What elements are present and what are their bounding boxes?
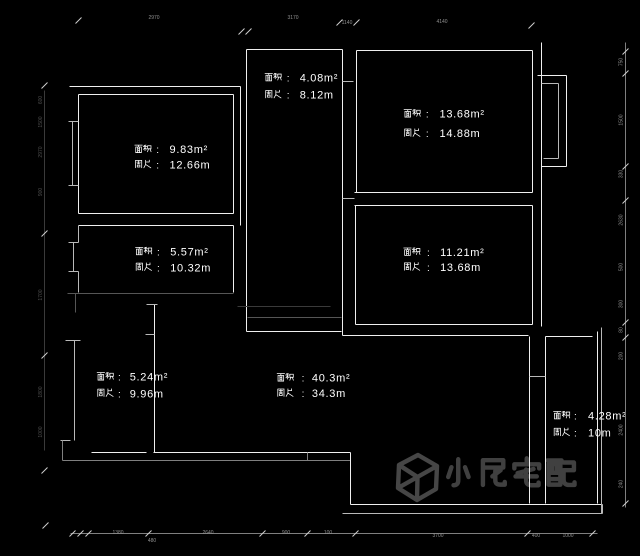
svg-text:2970: 2970	[38, 146, 44, 157]
svg-text::: :	[574, 429, 577, 440]
svg-text::: :	[426, 129, 429, 140]
svg-text:1000: 1000	[38, 426, 44, 437]
svg-text:400: 400	[532, 533, 541, 539]
svg-text:900: 900	[282, 530, 291, 536]
svg-text:1500: 1500	[619, 114, 625, 125]
svg-text::: :	[118, 389, 121, 400]
svg-text::: :	[157, 263, 160, 274]
svg-text:80: 80	[619, 327, 625, 333]
svg-text:9.83m²: 9.83m²	[170, 144, 208, 156]
svg-text:13.68m²: 13.68m²	[440, 109, 485, 121]
svg-text:3700: 3700	[432, 533, 443, 539]
svg-text::: :	[427, 248, 430, 259]
svg-text:3170: 3170	[287, 15, 298, 21]
svg-text:14.88m: 14.88m	[440, 128, 481, 140]
svg-text:11.21m²: 11.21m²	[440, 247, 484, 259]
svg-text:4140: 4140	[436, 19, 447, 25]
svg-text::: :	[426, 110, 429, 121]
svg-text:2400: 2400	[619, 424, 625, 435]
svg-text:10m: 10m	[588, 428, 612, 440]
svg-text:10.32m: 10.32m	[170, 262, 211, 274]
svg-text::: :	[302, 389, 305, 400]
svg-text:5.24m²: 5.24m²	[130, 372, 168, 384]
svg-text:1500: 1500	[38, 116, 44, 127]
svg-text::: :	[287, 91, 290, 102]
svg-text:300: 300	[619, 300, 625, 309]
svg-text:750: 750	[619, 58, 625, 67]
svg-text:1700: 1700	[38, 289, 44, 300]
svg-text::: :	[287, 74, 290, 85]
svg-text::: :	[156, 161, 159, 172]
svg-text:200: 200	[619, 352, 625, 361]
svg-text:8.12m: 8.12m	[300, 90, 334, 102]
svg-text:4.08m²: 4.08m²	[300, 73, 338, 85]
svg-text:2640: 2640	[202, 530, 213, 536]
svg-text:900: 900	[38, 188, 44, 197]
svg-text:9.96m: 9.96m	[130, 388, 164, 400]
svg-text::: :	[118, 373, 121, 384]
svg-text:2970: 2970	[148, 15, 159, 21]
svg-text:500: 500	[619, 263, 625, 272]
svg-text:4.28m²: 4.28m²	[588, 411, 626, 423]
svg-text:600: 600	[38, 96, 44, 105]
svg-text:240: 240	[619, 480, 625, 489]
svg-text::: :	[156, 145, 159, 156]
svg-text::: :	[302, 374, 305, 385]
svg-text:1380: 1380	[112, 530, 123, 536]
svg-text:13.68m: 13.68m	[440, 262, 481, 274]
svg-text:330: 330	[619, 170, 625, 179]
svg-text:480: 480	[148, 538, 157, 544]
svg-text:5.57m²: 5.57m²	[170, 246, 208, 258]
svg-text:40.3m²: 40.3m²	[312, 373, 350, 385]
svg-text:100: 100	[324, 530, 333, 536]
svg-text:1140: 1140	[342, 20, 353, 26]
svg-text:34.3m: 34.3m	[312, 388, 346, 400]
svg-text:1000: 1000	[562, 533, 573, 539]
svg-text:12.66m: 12.66m	[170, 160, 211, 172]
svg-text::: :	[427, 263, 430, 274]
svg-text::: :	[574, 412, 577, 423]
svg-text:2630: 2630	[619, 214, 625, 225]
svg-text:1800: 1800	[38, 386, 44, 397]
svg-text::: :	[157, 247, 160, 258]
